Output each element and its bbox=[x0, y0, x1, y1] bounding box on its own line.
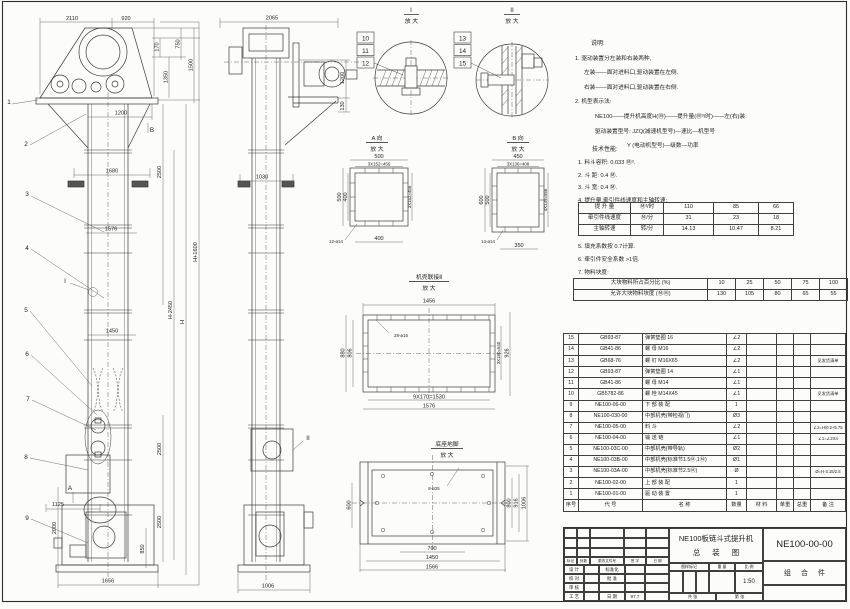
bom-remark bbox=[811, 334, 846, 345]
callout-13: 13 bbox=[459, 36, 467, 43]
bom-name: 弹簧垫圈 14 bbox=[643, 367, 727, 378]
cell: 75 bbox=[792, 279, 820, 290]
dim: 920 bbox=[121, 16, 130, 22]
bom-code: NE100-02-00 bbox=[579, 478, 643, 489]
cell: 80 bbox=[764, 290, 792, 301]
row-label: 大块物料所占百分比 (%) bbox=[574, 279, 708, 290]
sheets-total: 共 张 bbox=[669, 593, 716, 601]
callout-11: 11 bbox=[362, 48, 369, 55]
rev-cell bbox=[577, 528, 590, 538]
rev-hdr-date: 日 期 bbox=[646, 557, 669, 565]
table-row: 提 升 量 Ⓜ³/时 110 85 66 bbox=[579, 203, 794, 214]
bom-row: 1NE100-01-00驱 动 装 置1 bbox=[564, 489, 846, 500]
bom-name: 驱 动 装 置 bbox=[643, 489, 727, 500]
bom-qty: ∠2 bbox=[727, 345, 747, 356]
bom-no: 15 bbox=[564, 334, 579, 345]
dim: 3X180=540 bbox=[496, 341, 501, 364]
callout-10: 10 bbox=[362, 36, 370, 43]
bom-mat bbox=[747, 367, 777, 378]
bom-name: 下 部 装 配 bbox=[643, 400, 727, 411]
boot-fitting bbox=[70, 545, 86, 557]
role-approve: 批 准 bbox=[599, 574, 625, 583]
rev-cell bbox=[577, 538, 590, 548]
takeup-roller bbox=[263, 441, 281, 459]
sig-cell bbox=[645, 583, 669, 592]
dim: 2110 bbox=[66, 16, 78, 22]
bom-name: 螺 母 M14 bbox=[643, 378, 727, 389]
bom-code: NE100-06-00 bbox=[579, 400, 643, 411]
dim: 400 bbox=[374, 236, 383, 242]
row-unit: Ⓜ³/时 bbox=[631, 203, 664, 214]
dim: 880 bbox=[341, 348, 347, 357]
bom-uw bbox=[777, 467, 794, 478]
bom-code: GB68-76 bbox=[579, 356, 643, 367]
dim: 1566 bbox=[426, 565, 438, 571]
row-label: 提 升 量 bbox=[579, 203, 631, 214]
sig-cell bbox=[625, 565, 645, 574]
cell: 14.13 bbox=[664, 225, 714, 236]
flange-outer bbox=[350, 168, 408, 226]
dim: 926 bbox=[505, 348, 511, 357]
bom-tw bbox=[794, 356, 811, 367]
bom-mat bbox=[747, 345, 777, 356]
bom-header-row: 序号 代 号 名 称 数量 材 料 单重 总重 备 注 bbox=[564, 500, 846, 511]
dim: 130 bbox=[340, 101, 346, 110]
row-label: 允许大块物料块度 (ⓂⓂ) bbox=[574, 290, 708, 301]
bom-header-qty: 数量 bbox=[727, 500, 747, 511]
front-elevation-view bbox=[36, 28, 158, 578]
bom-tw bbox=[794, 489, 811, 500]
title-block: 标记 处数 更改文件号 签 字 日 期 设 计 标准化 校 对 批 准 审 核 … bbox=[563, 527, 847, 602]
rev-cell bbox=[590, 538, 624, 548]
bom-remark: ∠1=∠2X4 bbox=[811, 433, 846, 444]
bom-no: 4 bbox=[564, 456, 579, 467]
dim: 700 bbox=[427, 546, 436, 552]
cell: 110 bbox=[664, 203, 714, 214]
callout-3: 3 bbox=[25, 191, 29, 198]
rev-cell bbox=[646, 538, 669, 548]
drawing-sheet: 2110 920 170 750 1350 1500 1200 B 1680 1… bbox=[0, 0, 850, 609]
flange-inner bbox=[497, 173, 539, 227]
bom-qty: Ø1 bbox=[727, 456, 747, 467]
dim: 2065 bbox=[266, 16, 278, 22]
dim: 1500 bbox=[189, 59, 195, 71]
dim: H bbox=[180, 320, 186, 324]
flange-block bbox=[522, 54, 534, 68]
view-A: A 向 放 大 500 3X152=456 500 400 3X152=456 … bbox=[329, 134, 412, 244]
bom-row: 3NE100-03A-00中部机壳(标准节2.5Ⓜ)ØØ=H-3.15/2.5 bbox=[564, 467, 846, 478]
drawing-number: NE100-00-00 bbox=[763, 528, 846, 561]
bom-header-name: 名 称 bbox=[643, 500, 727, 511]
bom-uw bbox=[777, 456, 794, 467]
bom-code: NE100-030-00 bbox=[579, 411, 643, 422]
rev-cell bbox=[590, 528, 624, 538]
flange-block-2 bbox=[534, 58, 542, 67]
bom-name: 中部机壳(带导轨) bbox=[643, 444, 727, 455]
base-dims bbox=[352, 466, 529, 572]
bom-code: GB5782-86 bbox=[579, 389, 643, 400]
bom-header-code: 代 号 bbox=[579, 500, 643, 511]
cell: 55 bbox=[820, 290, 848, 301]
bom-tw bbox=[794, 467, 811, 478]
enlarged-label: 放 大 bbox=[422, 284, 435, 292]
role-process: 工 艺 bbox=[564, 592, 584, 601]
bucket-roller-2 bbox=[91, 441, 105, 455]
rev-cell bbox=[646, 528, 669, 538]
scale-value: 1:50 bbox=[735, 571, 763, 593]
pulley-hub bbox=[57, 81, 63, 87]
drawing-title: NE100板链斗式提升机 总 装 图 bbox=[669, 528, 763, 563]
bom-name: 中部机壳(标准节1.5Ⓜ,1Ⓜ) bbox=[643, 456, 727, 467]
bom-uw bbox=[777, 422, 794, 433]
cell: 18 bbox=[759, 214, 794, 225]
bom-uw bbox=[777, 367, 794, 378]
enlarged-label: 放 大 bbox=[405, 17, 418, 25]
cell: 65 bbox=[792, 290, 820, 301]
bom-name: 弹簧垫圈 16 bbox=[643, 334, 727, 345]
rev-cell bbox=[577, 548, 590, 557]
weight-label: 重 量 bbox=[709, 563, 735, 571]
hole-spec: 12-ø14 bbox=[329, 239, 343, 244]
bom-tw bbox=[794, 444, 811, 455]
detail-view-I: I 放 大 10 11 12 bbox=[357, 7, 449, 116]
bom-name: 中部机壳(带检视门) bbox=[643, 411, 727, 422]
bom-name: 上 部 装 配 bbox=[643, 478, 727, 489]
rev-hdr-count: 处数 bbox=[577, 557, 590, 565]
bom-no: 14 bbox=[564, 345, 579, 356]
mark-box bbox=[683, 571, 696, 593]
bom-qty: ∠2 bbox=[727, 422, 747, 433]
bom-mat bbox=[747, 422, 777, 433]
base-anchor-view: 底座地脚 放 大 8-ø25 600 800 916 1006 700 1450… bbox=[347, 440, 530, 572]
bom-qty: ∠1 bbox=[727, 367, 747, 378]
bom-header-tw: 总重 bbox=[794, 500, 811, 511]
callout-1: 1 bbox=[7, 99, 11, 106]
notes-title: 说明: bbox=[575, 38, 843, 53]
bom-row: 7NE100-05-00料 斗∠2∠2=H/0.2+5.75 bbox=[564, 422, 846, 433]
bolt-shaft bbox=[488, 75, 514, 85]
head-wheel-inner bbox=[86, 35, 120, 69]
bom-uw bbox=[777, 444, 794, 455]
bom-row: 12GB93-87弹簧垫圈 14∠1 bbox=[564, 367, 846, 378]
drawing-title-line2: 总 装 图 bbox=[688, 547, 744, 558]
bom-qty: ∠1 bbox=[727, 389, 747, 400]
bom-code: GB41-86 bbox=[579, 378, 643, 389]
cell: 66 bbox=[759, 203, 794, 214]
bom-no: 5 bbox=[564, 444, 579, 455]
bolt-hole-ticks bbox=[492, 168, 544, 232]
bom-uw bbox=[777, 345, 794, 356]
view-B-label: B 向 bbox=[512, 134, 523, 142]
bom-name: 螺 钉 M16X65 bbox=[643, 356, 727, 367]
rev-cell bbox=[624, 538, 646, 548]
bom-qty: ∠1 bbox=[727, 378, 747, 389]
dim: 3X136=408 bbox=[507, 161, 530, 166]
bom-mat bbox=[747, 433, 777, 444]
sig-cell bbox=[645, 565, 669, 574]
flange-outer bbox=[492, 168, 544, 232]
cell: 31 bbox=[664, 214, 714, 225]
callout-14: 14 bbox=[459, 48, 467, 55]
bom-mat bbox=[747, 444, 777, 455]
bom-code: GB93-87 bbox=[579, 367, 643, 378]
mark-box bbox=[696, 571, 709, 593]
scale-label: 比 例 bbox=[735, 563, 763, 571]
note-line: 右装——面对进料口,驱动装置在右侧. bbox=[575, 82, 843, 97]
rev-cell bbox=[564, 538, 577, 548]
enlarged-label: 放 大 bbox=[505, 17, 518, 25]
bom-code: NE100-03A-00 bbox=[579, 467, 643, 478]
bom-remark bbox=[811, 411, 846, 422]
dim: H-2450 bbox=[168, 301, 174, 319]
cell: 130 bbox=[708, 290, 736, 301]
bom-remark bbox=[811, 367, 846, 378]
enlarged-label: 放 大 bbox=[370, 145, 383, 153]
bucket-roller-1 bbox=[91, 419, 105, 433]
bom-qty: 1 bbox=[727, 478, 747, 489]
support-legs bbox=[48, 104, 150, 148]
drive-pulley-4 bbox=[106, 75, 124, 93]
sig-cell bbox=[625, 574, 645, 583]
callout-2: 2 bbox=[24, 141, 28, 148]
dim: 806 bbox=[348, 348, 354, 357]
bom-name: 螺 栓 M14X45 bbox=[643, 389, 727, 400]
sig-cell bbox=[584, 565, 599, 574]
table-row: 主轴转速 转/分 14.13 10.47 8.21 bbox=[579, 225, 794, 236]
callout-6: 6 bbox=[25, 351, 29, 358]
sig-cell bbox=[645, 574, 669, 583]
bom-no: 2 bbox=[564, 478, 579, 489]
dim: 1125 bbox=[52, 502, 64, 508]
detail-II-label: II bbox=[510, 7, 514, 14]
drawing-title-line1: NE100板链斗式提升机 bbox=[679, 533, 753, 544]
dim: 1006 bbox=[262, 584, 274, 590]
rev-cell bbox=[590, 548, 624, 557]
bom-row: 13GB68-76螺 钉 M16X65∠2见发货清单 bbox=[564, 356, 846, 367]
bom-uw bbox=[777, 334, 794, 345]
note-line: 1. 驱动装置分左装和右装两种, bbox=[575, 53, 843, 68]
bom-name: 输 送 链 bbox=[643, 433, 727, 444]
callout-4: 4 bbox=[25, 245, 29, 252]
table-row: 大块物料所占百分比 (%) 10 25 50 75 100 bbox=[574, 279, 848, 290]
view-B: B 向 放 大 450 3X136=408 600 500 4X139=556 … bbox=[479, 134, 548, 249]
role-audit: 审 核 bbox=[564, 583, 584, 592]
bom-uw bbox=[777, 478, 794, 489]
bom-remark bbox=[811, 345, 846, 356]
pulley-hub bbox=[112, 81, 118, 87]
dim: 1450 bbox=[106, 329, 118, 335]
callout-7: 7 bbox=[26, 396, 30, 403]
rev-cell bbox=[624, 528, 646, 538]
head-base-plate bbox=[36, 98, 158, 104]
bom-code: NE100-05-00 bbox=[579, 422, 643, 433]
bom-no: 8 bbox=[564, 411, 579, 422]
bom-no: 1 bbox=[564, 489, 579, 500]
perf-item: 3. 斗 宽: 0.4 Ⓜ. bbox=[578, 182, 843, 195]
sheet-number: 第 张 bbox=[716, 593, 763, 601]
casing-joint-label: 机壳联接Ⅱ bbox=[416, 273, 442, 281]
sig-cell bbox=[584, 583, 599, 592]
part-kind: 组 合 件 bbox=[763, 561, 846, 585]
perf-item: 2. 斗 距: 0.4 Ⓜ. bbox=[578, 170, 843, 183]
callout-leader bbox=[471, 63, 501, 78]
perf-item: 1. 料斗容积: 0.033 Ⓜ³. bbox=[578, 157, 843, 170]
cell: 105 bbox=[736, 290, 764, 301]
bom-tw bbox=[794, 411, 811, 422]
bom-remark bbox=[811, 478, 846, 489]
table-row: 牵引件线速度 Ⓜ/分 31 23 18 bbox=[579, 214, 794, 225]
bom-name: 中部机壳(标准节2.5Ⓜ) bbox=[643, 467, 727, 478]
side-dim-text: 2065 1200 130 1030 1006 II bbox=[256, 16, 346, 590]
side-dim-lines bbox=[220, 18, 350, 593]
bom-mat bbox=[747, 356, 777, 367]
bom-uw bbox=[777, 433, 794, 444]
bom-row: 5NE100-03C-00中部机壳(带导轨)Ø2 bbox=[564, 444, 846, 455]
wall-bracket-left bbox=[68, 181, 84, 187]
side-boot-base bbox=[238, 565, 310, 572]
bom-remark: 见发货清单 bbox=[811, 356, 846, 367]
side-boot-wheel bbox=[259, 525, 281, 547]
sig-cell bbox=[584, 574, 599, 583]
base-view-label: 底座地脚 bbox=[435, 440, 458, 448]
cell: 23 bbox=[714, 214, 759, 225]
bom-uw bbox=[777, 411, 794, 422]
rev-cell bbox=[564, 528, 577, 538]
boot-base bbox=[56, 565, 158, 572]
callout-9: 9 bbox=[25, 515, 29, 522]
note-line: 驱动装置型号: JZQ(减速机型号)—速比—机型号 bbox=[575, 126, 843, 141]
bom-name: 螺 母 M16 bbox=[643, 345, 727, 356]
rev-hdr-file: 更改文件号 bbox=[590, 557, 624, 565]
bom-code: GB93-87 bbox=[579, 334, 643, 345]
bom-mat bbox=[747, 478, 777, 489]
section-marker-B: B bbox=[150, 127, 154, 134]
notes-block: 说明: 1. 驱动装置分左装和右装两种, 左装——面对进料口,驱动装置在左侧. … bbox=[575, 38, 843, 155]
bom-remark: Ø=H-3.15/2.5 bbox=[811, 467, 846, 478]
view-A-dims bbox=[343, 160, 412, 242]
detail-II-marker: II bbox=[306, 435, 310, 442]
bom-uw bbox=[777, 400, 794, 411]
dim: 500 bbox=[374, 154, 383, 160]
detail-I-location-circle bbox=[89, 288, 98, 297]
dim: 1680 bbox=[106, 169, 118, 175]
bolt-hole-ticks bbox=[350, 168, 408, 226]
bom-remark: ∠2=H/0.2+5.75 bbox=[811, 422, 846, 433]
role-standardization: 标准化 bbox=[599, 565, 625, 574]
lump-size-table: 大块物料所占百分比 (%) 10 25 50 75 100 允许大块物料块度 (… bbox=[573, 278, 848, 301]
bom-header-remark: 备 注 bbox=[811, 500, 846, 511]
bom-qty: Ø3 bbox=[727, 411, 747, 422]
sig-cell bbox=[584, 592, 599, 601]
flange-inner bbox=[355, 173, 403, 221]
mark-label: 图样标记 bbox=[669, 563, 709, 571]
bom-code: NE100-01-00 bbox=[579, 489, 643, 500]
drive-plate bbox=[293, 43, 299, 107]
bom-row: 6NE100-04-00输 送 链∠1∠1=∠2X4 bbox=[564, 433, 846, 444]
drive-pulley-1 bbox=[51, 75, 69, 93]
wall-bracket-right bbox=[132, 181, 148, 187]
bom-row: 15GB93-87弹簧垫圈 16∠2 bbox=[564, 334, 846, 345]
casing-joint-view: 机壳联接Ⅱ 放 大 1456 28-ø16 880 806 3X180=540 … bbox=[341, 273, 511, 410]
bom-name: 料 斗 bbox=[643, 422, 727, 433]
dim: 850 bbox=[140, 544, 146, 553]
view-B-dims bbox=[485, 160, 548, 249]
dim: 400 bbox=[343, 192, 349, 201]
weight-box bbox=[709, 571, 735, 593]
enlarged-label: 放 大 bbox=[511, 145, 524, 153]
bom-qty: ∠1 bbox=[727, 433, 747, 444]
dim: 750 bbox=[176, 39, 182, 48]
dim: 3X152=456 bbox=[368, 161, 391, 166]
dim: 600 bbox=[347, 500, 353, 509]
bom-no: 13 bbox=[564, 356, 579, 367]
speed-table: 提 升 量 Ⓜ³/时 110 85 66 牵引件线速度 Ⓜ/分 31 23 18… bbox=[578, 202, 794, 236]
bom-no: 12 bbox=[564, 367, 579, 378]
bom-remark: 见发货清单 bbox=[811, 389, 846, 400]
bom-tw bbox=[794, 422, 811, 433]
bom-qty: 1 bbox=[727, 400, 747, 411]
dim: 800 bbox=[507, 498, 513, 507]
dim: 1656 bbox=[102, 579, 114, 585]
bom-mat bbox=[747, 378, 777, 389]
dim: 2500 bbox=[157, 166, 163, 178]
bom-row: 14GB41-86螺 母 M16∠2 bbox=[564, 345, 846, 356]
dim: 1456 bbox=[423, 299, 435, 305]
dim: 1006 bbox=[522, 497, 528, 509]
bom-no: 7 bbox=[564, 422, 579, 433]
sig-cell bbox=[599, 583, 625, 592]
dim: 2500 bbox=[157, 443, 163, 455]
bom-row: 4NE100-03B-00中部机壳(标准节1.5Ⓜ,1Ⓜ)Ø1 bbox=[564, 456, 846, 467]
callout-12: 12 bbox=[362, 61, 370, 68]
bom-mat bbox=[747, 489, 777, 500]
bom-tw bbox=[794, 433, 811, 444]
drive-pulley-2 bbox=[72, 79, 86, 93]
sig-cell bbox=[645, 592, 669, 601]
dim: 1200 bbox=[340, 72, 346, 84]
callout-leader bbox=[374, 63, 403, 75]
dim: 2000 bbox=[52, 522, 58, 534]
motor-shaft bbox=[346, 70, 357, 79]
bom-qty: Ø2 bbox=[727, 444, 747, 455]
dim: 1350 bbox=[164, 71, 170, 83]
dim: 916 bbox=[514, 498, 520, 507]
bom-no: 10 bbox=[564, 389, 579, 400]
perf-item: 5. 填充系数按 0.7计算. bbox=[578, 241, 843, 254]
rev-cell bbox=[624, 548, 646, 557]
note-line: NE100——提升机高度H(Ⓜ)——提升量(Ⓜ³/时)——左(右)装. bbox=[575, 111, 843, 126]
rev-hdr-mark: 标记 bbox=[564, 557, 577, 565]
bom-remark bbox=[811, 444, 846, 455]
takeup-frame bbox=[251, 429, 293, 471]
bom-no: 11 bbox=[564, 378, 579, 389]
bom-mat bbox=[747, 389, 777, 400]
callout-8: 8 bbox=[24, 454, 28, 461]
performance-block: 技术性能: 1. 料斗容积: 0.033 Ⓜ³. 2. 斗 距: 0.4 Ⓜ. … bbox=[578, 144, 843, 208]
perf-item: 6. 牵引件安全系数 >1倍. bbox=[578, 254, 843, 267]
motor-body-inner bbox=[325, 67, 339, 81]
enlarged-label: 放 大 bbox=[440, 451, 453, 459]
rev-cell bbox=[646, 548, 669, 557]
bom-tw bbox=[794, 345, 811, 356]
cell: 85 bbox=[714, 203, 759, 214]
bom-qty: ∠2 bbox=[727, 356, 747, 367]
bom-uw bbox=[777, 389, 794, 400]
hole-spec: 28-ø16 bbox=[394, 333, 408, 338]
centerlines bbox=[352, 455, 512, 552]
row-label: 主轴转速 bbox=[579, 225, 631, 236]
bom-header-mat: 材 料 bbox=[747, 500, 777, 511]
